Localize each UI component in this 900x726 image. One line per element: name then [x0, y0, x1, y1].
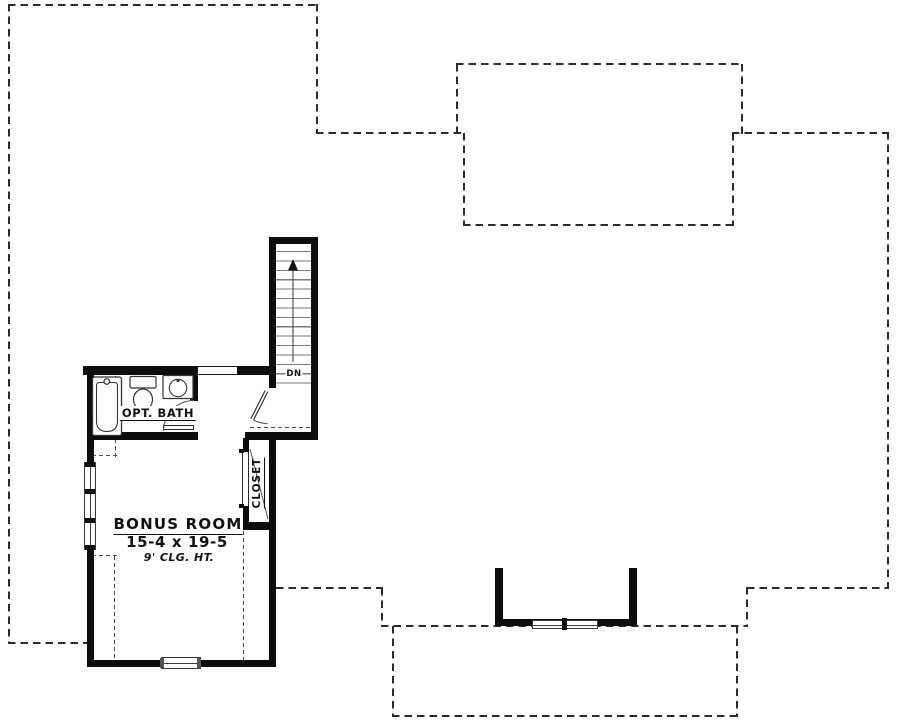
bath-label: OPT. BATH — [120, 406, 196, 421]
bathtub-basin — [97, 383, 118, 432]
bathtub-faucet-icon — [104, 379, 110, 385]
stair-direction-label: DN — [285, 369, 302, 379]
toilet-tank — [130, 377, 156, 389]
stair-door-arc — [254, 420, 268, 424]
fixtures-and-symbols-layer — [0, 0, 900, 726]
floor-plan-canvas: OPT. BATH BONUS ROOM 15-4 x 19-5 9' CLG.… — [0, 0, 900, 726]
closet-label: CLOSET — [251, 458, 265, 509]
stair-up-arrow-icon — [288, 259, 298, 271]
sink-faucet-icon — [176, 379, 179, 382]
bonus-room-label: BONUS ROOM — [114, 515, 243, 535]
stair-door-leaf — [251, 391, 268, 421]
bonus-room-dimensions: 15-4 x 19-5 — [126, 533, 228, 551]
bonus-room-ceiling-height: 9' CLG. HT. — [144, 551, 214, 564]
